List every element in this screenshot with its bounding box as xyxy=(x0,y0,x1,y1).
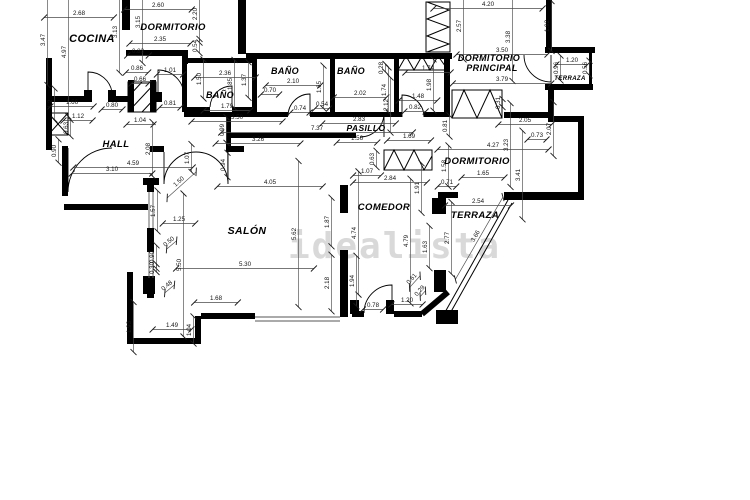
dimension-value: 0.61 xyxy=(405,272,419,286)
dimension-value: 1.74 xyxy=(381,83,388,96)
dimension: 5.50 xyxy=(176,191,187,340)
dimension: 2.60 xyxy=(121,2,195,13)
dimension-value: 1.50 xyxy=(172,175,186,189)
dimension: 0.80 xyxy=(99,102,126,113)
dimension-value: 0.66 xyxy=(134,76,147,83)
room-label: DORMITORIO xyxy=(444,156,510,167)
dimension-value: 2.10 xyxy=(287,78,300,85)
dimension-value: 3.79 xyxy=(496,76,509,83)
dimension-value: 3.10 xyxy=(106,166,119,173)
dimension: 0.70 xyxy=(258,87,282,98)
dimension-value: 3.23 xyxy=(503,138,510,151)
dimension-value: 4.79 xyxy=(403,234,410,247)
dimension-value: 0.29 xyxy=(413,284,427,298)
dimension: 1.04 xyxy=(123,117,156,128)
dimension-value: 1.2 xyxy=(47,99,54,108)
dimension-value: 0.56 xyxy=(582,61,589,74)
dimension-value: 1.98 xyxy=(426,78,433,91)
room-label: BAÑO xyxy=(206,90,234,100)
dimension-value: 1.68 xyxy=(210,295,223,302)
dimension: 5.62 xyxy=(291,158,302,310)
dimension: 1.65 xyxy=(459,170,508,181)
dimension: 1.50 xyxy=(160,164,200,202)
dimension-value: 0.74 xyxy=(294,105,307,112)
dimension: 0.94 xyxy=(220,150,231,180)
dimension-value: 1.65 xyxy=(477,170,490,177)
dimension-value: 0.80 xyxy=(106,102,119,109)
floor-plan-page: idealista xyxy=(0,0,750,500)
dimension: 3.41 xyxy=(515,128,526,223)
dimension: 0.63 xyxy=(369,148,380,170)
dimension: 5.30 xyxy=(173,261,317,272)
dimension-value: 1.49 xyxy=(166,322,179,329)
dimension-value: 1.69 xyxy=(403,133,416,140)
dimension-value: 2.07 xyxy=(546,122,553,135)
room-label: DORMITORIO xyxy=(140,22,206,33)
dimension-value: 2.57 xyxy=(456,19,463,32)
dimension-value: 1.74 xyxy=(422,65,435,72)
dimension: 0.82 xyxy=(401,104,428,115)
room-label: TERRAZA xyxy=(554,76,585,82)
dimension-value: 0.81 xyxy=(442,119,449,132)
dimension: 1.68 xyxy=(191,295,241,306)
dimension-value: 1.57 xyxy=(150,204,157,217)
dimension: 1.37 xyxy=(241,59,252,101)
dimension-value: 5.30 xyxy=(239,261,252,268)
dimension-value: 0.30 xyxy=(149,261,156,274)
room-label: HALL xyxy=(103,139,130,150)
dimension-value: 2.77 xyxy=(444,231,451,244)
dimension-value: 4.20 xyxy=(482,1,495,8)
dimension: 0.31 xyxy=(495,96,506,110)
dimension: 2.18 xyxy=(324,252,335,315)
wardrobe xyxy=(384,2,502,170)
dimension-value: 0.54 xyxy=(316,101,329,108)
dimension-value: 5.62 xyxy=(291,227,298,240)
dimension-value: 1.01 xyxy=(164,67,177,74)
dimension: 4.79 xyxy=(403,176,414,307)
dimension-value: 1.94 xyxy=(349,274,356,287)
dimension: 1.87 xyxy=(324,195,335,250)
dimension-value: 2.08 xyxy=(145,142,152,155)
dimension-value: 1.07 xyxy=(184,151,191,164)
dimension-value: 0.31 xyxy=(495,96,502,109)
dimension-value: 1.04 xyxy=(186,323,193,336)
dimension: 1.69 xyxy=(384,133,434,144)
room-label: TERRAZA xyxy=(451,210,499,221)
dimension-value: 2.36 xyxy=(219,70,232,77)
dimension: 2.35 xyxy=(126,36,193,47)
dimension-value: 0.70 xyxy=(264,87,277,94)
dimension-value: 2.68 xyxy=(73,10,86,17)
dimension: 1.25 xyxy=(160,216,199,227)
dimension-value: 1.48 xyxy=(412,93,425,100)
dimension-value: 1.79 xyxy=(221,103,234,110)
dimension-value: 2.84 xyxy=(384,175,397,182)
dimension-value: 5.50 xyxy=(176,258,183,271)
dimension: 0.74 xyxy=(287,105,312,116)
dimension-value: 1.92 xyxy=(544,19,551,32)
dimension-value: 0.63 xyxy=(369,152,376,165)
dimension: 1.57 xyxy=(150,188,161,235)
dimension: 4.27 xyxy=(434,142,551,153)
dimension-value: 3.47 xyxy=(40,33,47,46)
dimension: 1.07 xyxy=(184,141,195,175)
dimension: 0.30 xyxy=(149,261,160,275)
dimension-value: 0.28 xyxy=(378,61,385,74)
room-label: DORMITORIO xyxy=(458,53,520,63)
dimension-value: 0.82 xyxy=(409,104,422,111)
dimension-value: 1.91 xyxy=(414,181,421,194)
dimension-value: 2.83 xyxy=(353,116,366,123)
dimension-value: 2.18 xyxy=(324,276,331,289)
dimension-value: 4.97 xyxy=(61,45,68,58)
dimension: 0.54 xyxy=(192,36,203,56)
dimension-value: 2.12 xyxy=(383,98,390,111)
dimension-value: 1.37 xyxy=(241,73,248,86)
dimension-value: 2.02 xyxy=(354,90,367,97)
dimension: 2.68 xyxy=(41,10,117,21)
room-label: COMEDOR xyxy=(358,202,410,213)
dimension-value: 2.35 xyxy=(154,36,167,43)
dimension-value: 0.83 xyxy=(132,48,145,55)
dimension-value: 0.81 xyxy=(164,100,177,107)
room-label: COCINA xyxy=(69,33,115,45)
room-label: PASILLO xyxy=(346,123,385,133)
dimension-value: 0.78 xyxy=(367,302,380,309)
floor-plan-svg: 2.683.474.973.132.603.152.202.350.830.54… xyxy=(0,0,750,500)
dimension: 3.79 xyxy=(450,76,555,87)
dimension-value: 0.94 xyxy=(220,158,227,171)
dimension-value: 1.56 xyxy=(351,135,364,142)
dimension: 0.29 xyxy=(413,283,430,300)
dimension-value: 4.74 xyxy=(351,226,358,239)
dimension: 4.05 xyxy=(214,179,325,190)
dimension-value: 0.54 xyxy=(192,39,199,52)
dimension: 1.50 xyxy=(196,57,207,102)
dimension-value: 1.20 xyxy=(566,57,579,64)
dimension-value: 1.12 xyxy=(72,113,85,120)
dimension-value: 0.50 xyxy=(162,235,176,248)
dimension: 0.90 xyxy=(51,136,62,165)
dimension-value: 4.05 xyxy=(264,179,277,186)
dimension-value: 3.38 xyxy=(505,30,512,43)
dimension: 0.86 xyxy=(123,65,151,76)
dimension-value: 3.26 xyxy=(252,136,265,143)
dimension: 1.01 xyxy=(154,67,186,78)
dimension-value: 0.48 xyxy=(160,279,174,292)
dimension-value: 1.50 xyxy=(196,72,203,85)
dimension-value: 3.41 xyxy=(515,168,522,181)
dimension: 1.63 xyxy=(422,223,433,271)
dimension-value: 1.07 xyxy=(361,168,374,175)
dimension-value: 0.99 xyxy=(219,123,226,136)
dimension-value: 1.93 xyxy=(126,320,133,333)
dimension-value: 4.59 xyxy=(127,160,140,167)
dimension-value: 1.65 xyxy=(316,80,323,93)
dimension: 4.59 xyxy=(70,160,195,171)
dimension-value: 1.63 xyxy=(422,240,429,253)
dimension: 0.28 xyxy=(378,61,389,75)
dimension-value: 0.63 xyxy=(63,121,70,134)
dimension-value: 2.20 xyxy=(192,7,199,20)
window xyxy=(149,192,340,321)
room-label: BAÑO xyxy=(337,66,365,76)
dimension-value: 3.50 xyxy=(231,114,244,121)
dimension-value: 2.05 xyxy=(519,117,532,124)
dimension: 0.48 xyxy=(158,277,179,297)
dimension: 0.54 xyxy=(312,101,332,112)
room-label: PRINCIPAL xyxy=(466,63,517,73)
dimension-value: 1.87 xyxy=(324,215,331,228)
dimension-value: 0.96 xyxy=(553,61,560,74)
dimension-value: 1.20 xyxy=(401,297,414,304)
dimension-value: 1.85 xyxy=(227,77,234,90)
dimension-value: 4.27 xyxy=(487,142,500,149)
dimension-value: 7.37 xyxy=(311,125,324,132)
dimension-value: 0.90 xyxy=(149,250,156,263)
room-label: SALÓN xyxy=(228,224,267,237)
dimension-value: 0.90 xyxy=(51,144,58,157)
dimension-value: 1.66 xyxy=(66,99,79,106)
door-arc xyxy=(68,55,551,313)
dimension-value: 1.04 xyxy=(134,117,147,124)
dimension: 1.12 xyxy=(60,113,95,124)
dimension: 0.71 xyxy=(435,179,459,190)
dimension-value: 2.54 xyxy=(472,198,485,205)
dimension-value: 2.60 xyxy=(152,2,165,9)
dimension-value: 0.73 xyxy=(531,132,544,139)
dimension: 0.50 xyxy=(160,233,181,253)
dimension-value: 0.86 xyxy=(131,65,144,72)
room-label: BAÑO xyxy=(271,66,299,76)
